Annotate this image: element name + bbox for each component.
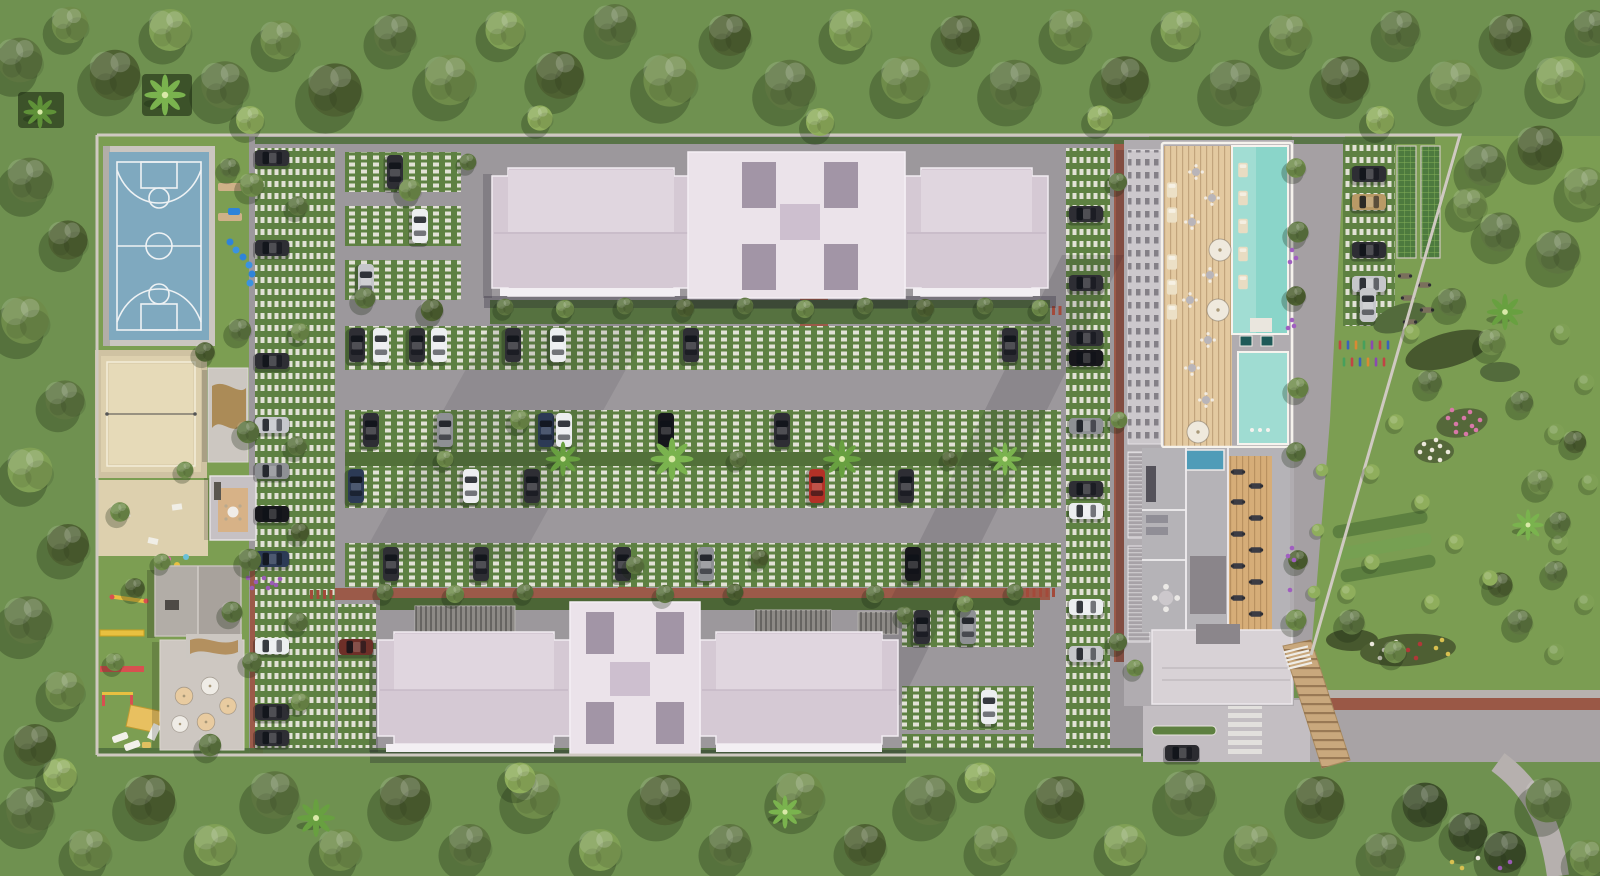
parked-cars-ne-instance xyxy=(1350,166,1387,186)
rect xyxy=(1261,336,1273,346)
parked-cars-rows-instance xyxy=(999,328,1019,366)
deck-loungers-instance xyxy=(1167,279,1177,294)
corner-flowers-white-instance xyxy=(1476,856,1481,861)
circle xyxy=(246,262,253,269)
corner-flowers-yellow-instance xyxy=(1460,866,1465,871)
rect xyxy=(103,146,110,346)
basketball-court xyxy=(103,146,215,346)
bike-rack-row2-instance xyxy=(1351,358,1354,367)
white-flowerbed-instance xyxy=(1430,448,1435,453)
road-flowerbed-yellow-instance xyxy=(1446,652,1451,657)
circle xyxy=(224,504,227,507)
patio-umbrellas-instance xyxy=(201,677,219,695)
parked-cars-rows-instance xyxy=(380,547,400,585)
rect xyxy=(1039,588,1042,597)
parked-cars-ne-instance xyxy=(1350,194,1387,214)
rect xyxy=(1146,466,1156,502)
bougainvillea-instance xyxy=(1290,318,1295,323)
corner-flowers-white xyxy=(1476,856,1481,861)
pink-flowerbed-instance xyxy=(1450,408,1455,413)
deck-umbrellas-instance xyxy=(1187,421,1209,443)
rect xyxy=(610,662,650,696)
circle xyxy=(228,507,239,518)
bougainvillea-instance xyxy=(1286,326,1291,331)
parked-cars-east-column-instance xyxy=(1067,599,1104,619)
parked-cars-west-column-instance xyxy=(253,638,290,658)
circle xyxy=(227,239,234,246)
rect xyxy=(1240,336,1252,346)
road-sidewalk xyxy=(1310,690,1600,699)
circle xyxy=(249,271,256,278)
entry-flowers-instance xyxy=(250,586,255,591)
road-flowerbed-yellow-instance xyxy=(1434,646,1439,651)
parked-cars-east-column-instance xyxy=(1067,481,1104,501)
car-on-road xyxy=(1163,745,1200,765)
rect xyxy=(755,610,831,634)
gym-equipment-instance xyxy=(1249,547,1263,553)
bike-rack-row2-instance xyxy=(1367,358,1370,367)
parked-cars-west-column-instance xyxy=(253,704,290,724)
parked-cars-rows-instance xyxy=(902,547,922,585)
road-flowerbed-white-instance xyxy=(1370,642,1375,647)
rect xyxy=(913,288,1040,296)
rect xyxy=(824,244,858,290)
rect xyxy=(1397,146,1416,258)
rect xyxy=(716,744,882,752)
patio-umbrellas-instance xyxy=(172,716,189,733)
bougainvillea-instance xyxy=(1286,554,1291,559)
parked-cars-rows-instance xyxy=(535,413,555,451)
garden-pavilion xyxy=(204,476,256,540)
gym-equipment-instance xyxy=(1231,531,1245,537)
circle xyxy=(1258,428,1262,432)
rect xyxy=(1196,624,1240,644)
rect xyxy=(142,742,151,748)
rect xyxy=(1146,515,1168,523)
bike-rack-row1-instance xyxy=(1371,341,1374,350)
bike-rack-row1-instance xyxy=(1387,341,1390,350)
parked-cars-rows-instance xyxy=(695,547,715,585)
circle xyxy=(105,412,109,416)
parked-cars-rows-instance xyxy=(434,413,454,451)
circle xyxy=(1250,428,1254,432)
rect xyxy=(656,702,684,744)
pink-flowerbed-instance xyxy=(1478,418,1483,423)
rect xyxy=(780,204,820,240)
pink-flowerbed-instance xyxy=(1446,416,1451,421)
rect xyxy=(165,600,179,610)
rect xyxy=(345,206,461,246)
rect xyxy=(323,590,326,599)
parked-cars-rows-instance xyxy=(502,328,522,366)
bougainvillea-instance xyxy=(1290,546,1295,551)
rect xyxy=(310,590,313,599)
bougainvillea-instance xyxy=(1292,558,1297,563)
parked-cars-west-column-instance xyxy=(253,463,290,483)
parked-cars-east-column-instance xyxy=(1067,330,1104,350)
deck-loungers-instance xyxy=(1167,254,1177,269)
parked-cars-west-column-instance xyxy=(253,353,290,373)
gym-equipment-instance xyxy=(1249,483,1263,489)
circle xyxy=(193,412,197,416)
car-on-road-instance xyxy=(1163,745,1200,765)
rect xyxy=(1052,588,1055,597)
rect xyxy=(1116,150,1124,662)
lower-pool xyxy=(1238,352,1288,444)
rect xyxy=(1026,588,1029,597)
circle xyxy=(238,517,241,520)
gym-equipment-instance xyxy=(1231,499,1245,505)
pool-ledge-loungers-instance xyxy=(1238,191,1248,205)
entry-median xyxy=(1152,726,1216,735)
circle xyxy=(240,254,247,261)
white-flowerbed-instance xyxy=(1438,444,1443,449)
bike-rack-row2-instance xyxy=(1383,358,1386,367)
parked-cars-rows-instance xyxy=(460,469,480,507)
parked-cars-east-column-instance xyxy=(1067,418,1104,438)
parked-cars-rows-instance xyxy=(345,469,365,507)
pink-flowerbed-instance xyxy=(1464,432,1469,437)
white-flowerbed-instance xyxy=(1422,442,1427,447)
entry-flowers-instance xyxy=(266,586,271,591)
rect xyxy=(228,208,240,215)
patio-umbrellas-instance xyxy=(175,687,193,705)
circle xyxy=(238,504,241,507)
rect xyxy=(1046,588,1049,597)
pool-ledge-loungers-instance xyxy=(1238,275,1248,289)
bike-rack-row1-instance xyxy=(1355,341,1358,350)
deck-loungers-instance xyxy=(1167,304,1177,319)
rect xyxy=(586,612,614,654)
bike-rack-row1-instance xyxy=(1347,341,1350,350)
rect xyxy=(100,630,144,636)
parked-cars-rows-instance xyxy=(409,209,429,247)
pink-flowerbed-instance xyxy=(1454,422,1459,427)
rect xyxy=(483,174,492,298)
pink-flowerbed-instance xyxy=(1454,430,1459,435)
rect xyxy=(1228,731,1262,736)
rect xyxy=(214,482,221,500)
rect xyxy=(386,744,554,752)
parked-cars-east-column-instance xyxy=(1067,503,1104,523)
pink-flowerbed-instance xyxy=(1474,428,1479,433)
pink-flowerbed-instance xyxy=(1462,416,1467,421)
entry-flowers-instance xyxy=(262,576,267,581)
parked-cars-rows-instance xyxy=(521,469,541,507)
rect xyxy=(415,606,515,632)
rect xyxy=(1033,588,1036,597)
rect xyxy=(902,734,1034,748)
gym-equipment-instance xyxy=(1231,595,1245,601)
deck-loungers-instance xyxy=(1167,207,1177,222)
gym-equipment-instance xyxy=(1231,469,1245,475)
road-flowerbed-yellow-instance xyxy=(1440,638,1445,643)
circle xyxy=(110,595,115,600)
parked-cars-east-column-instance xyxy=(1067,350,1104,370)
parked-cars-west-column-instance xyxy=(253,240,290,260)
bougainvillea-instance xyxy=(1292,324,1297,329)
rect xyxy=(1250,318,1272,332)
gym-equipment-instance xyxy=(1231,563,1245,569)
bike-rack-row2-instance xyxy=(1375,358,1378,367)
parked-cars-rows-instance xyxy=(346,328,366,366)
white-flowerbed-instance xyxy=(1446,450,1451,455)
rect xyxy=(500,288,680,296)
white-flowerbed-instance xyxy=(1434,438,1439,443)
rect xyxy=(508,170,674,232)
rect xyxy=(824,162,858,208)
white-flowerbed-instance xyxy=(1438,458,1443,463)
rect xyxy=(317,590,320,599)
apartment-building-south xyxy=(369,602,906,763)
deck-umbrellas-instance xyxy=(1207,299,1229,321)
entry-flowers-instance xyxy=(270,581,275,586)
gym-equipment-instance xyxy=(1249,611,1263,617)
white-flowerbed-instance xyxy=(1418,450,1423,455)
rect xyxy=(921,170,1032,232)
rect xyxy=(1228,722,1262,727)
rect xyxy=(656,612,684,654)
parked-cars-rows-instance xyxy=(406,328,426,366)
pool-ledge-loungers-instance xyxy=(1238,219,1248,233)
rect xyxy=(742,162,776,208)
parked-cars-rows-instance xyxy=(547,328,567,366)
bike-rack-row2-instance xyxy=(1343,358,1346,367)
parked-cars-east-column-instance xyxy=(1067,275,1104,295)
rect xyxy=(345,326,1061,370)
circle xyxy=(183,554,189,560)
rect xyxy=(102,692,133,695)
parked-cars-west-column-instance xyxy=(253,150,290,170)
parked-cars-west-column-instance xyxy=(253,730,290,750)
rect xyxy=(1059,306,1062,315)
rect xyxy=(1128,150,1162,444)
rect xyxy=(1228,749,1262,754)
parked-cars-rows-instance xyxy=(370,328,390,366)
rect xyxy=(204,478,210,540)
circle xyxy=(247,280,254,287)
sand-court xyxy=(95,350,207,478)
pool-ledge-loungers-instance xyxy=(1238,247,1248,261)
bougainvillea-instance xyxy=(1288,588,1293,593)
bike-rack-row1-instance xyxy=(1363,341,1366,350)
deck-umbrellas-instance xyxy=(1209,239,1231,261)
rect xyxy=(902,686,1034,730)
rect xyxy=(147,570,155,638)
road-flowerbed-red-instance xyxy=(1418,642,1423,647)
entry-flowers-instance xyxy=(278,577,283,582)
pink-flowerbed-instance xyxy=(1470,424,1475,429)
rect xyxy=(1228,456,1272,630)
white-flowerbed-instance xyxy=(1428,456,1433,461)
rect xyxy=(1190,556,1226,614)
rect xyxy=(330,590,333,599)
bougainvillea-instance xyxy=(1294,256,1299,261)
entry-flowers-instance xyxy=(274,583,279,588)
rect xyxy=(394,634,554,690)
parked-cars-rows-instance xyxy=(806,469,826,507)
parked-cars-rows-instance xyxy=(978,690,998,728)
corner-flowers-yellow-instance xyxy=(1450,860,1455,865)
patio-umbrellas-instance xyxy=(220,698,237,715)
parked-cars-east-column-instance xyxy=(1067,646,1104,666)
corner-flowers-purple-instance xyxy=(1508,860,1513,865)
circle xyxy=(233,247,240,254)
bougainvillea-instance xyxy=(1290,248,1295,253)
road-brick-band xyxy=(1310,698,1600,710)
rect xyxy=(152,642,159,748)
rect xyxy=(742,244,776,290)
parked-cars-rows-instance xyxy=(895,469,915,507)
rect xyxy=(716,634,882,690)
entry-flowers-instance xyxy=(254,580,259,585)
circle xyxy=(224,517,227,520)
rect xyxy=(1146,527,1168,535)
corner-flowers-purple-instance xyxy=(1498,866,1503,871)
masterplan-canvas xyxy=(0,0,1600,876)
outdoor-gym-instance xyxy=(1398,273,1412,279)
parked-cars-west-column-instance xyxy=(253,506,290,526)
bike-rack-row1-instance xyxy=(1339,341,1342,350)
rect xyxy=(1228,713,1262,718)
parked-cars-west-column-instance xyxy=(337,639,374,659)
gym-equipment-instance xyxy=(1249,579,1263,585)
bougainvillea-instance xyxy=(1288,260,1293,265)
pink-flowerbed-instance xyxy=(1468,410,1473,415)
parked-cars-east-column-instance xyxy=(1067,206,1104,226)
deck-loungers-instance xyxy=(1167,182,1177,197)
parked-cars-rows-instance xyxy=(771,413,791,451)
parked-cars-ne-instance xyxy=(1350,242,1387,262)
parked-cars-rows-instance xyxy=(680,328,700,366)
patio-umbrellas-instance xyxy=(197,713,215,731)
apartment-building-north xyxy=(483,152,1056,309)
rect xyxy=(858,612,898,634)
bike-rack-row1-instance xyxy=(1379,341,1382,350)
parked-cars-rows-instance xyxy=(360,413,380,451)
parked-cars-rows-instance xyxy=(428,328,448,366)
ellipse xyxy=(1480,362,1520,382)
road-flowerbed-red-instance xyxy=(1414,656,1419,661)
parked-cars-rows-instance xyxy=(470,547,490,585)
parked-cars-rows-instance xyxy=(1357,288,1377,326)
pool-ledge-loungers-instance xyxy=(1238,163,1248,177)
rect xyxy=(586,702,614,744)
aerial-masterplan-render xyxy=(0,0,1600,876)
circle xyxy=(1266,428,1270,432)
gym-equipment-instance xyxy=(1249,515,1263,521)
indoor-pool xyxy=(1186,450,1224,470)
bike-rack-row2-instance xyxy=(1359,358,1362,367)
rect xyxy=(1228,740,1262,745)
